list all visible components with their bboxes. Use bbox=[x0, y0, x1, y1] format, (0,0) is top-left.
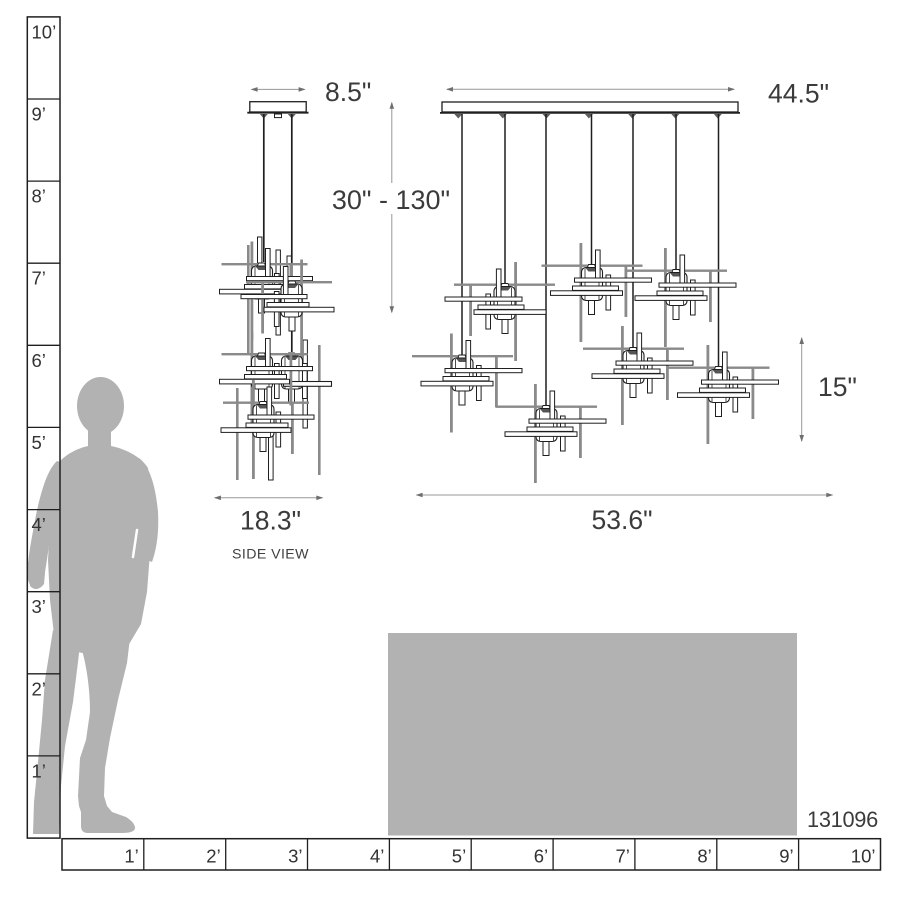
svg-text:44.5": 44.5" bbox=[768, 79, 829, 109]
svg-text:SIDE VIEW: SIDE VIEW bbox=[232, 547, 309, 563]
svg-text:7’: 7’ bbox=[615, 846, 629, 867]
svg-text:10’: 10’ bbox=[851, 846, 876, 867]
svg-text:4’: 4’ bbox=[370, 846, 384, 867]
svg-text:7’: 7’ bbox=[32, 268, 46, 289]
svg-text:30" - 130": 30" - 130" bbox=[332, 185, 450, 215]
svg-text:8’: 8’ bbox=[697, 846, 711, 867]
svg-text:4’: 4’ bbox=[32, 514, 46, 535]
svg-text:2’: 2’ bbox=[32, 678, 46, 699]
svg-text:9’: 9’ bbox=[32, 104, 46, 125]
svg-text:6’: 6’ bbox=[32, 350, 46, 371]
svg-text:1’: 1’ bbox=[124, 846, 138, 867]
svg-text:10’: 10’ bbox=[32, 21, 57, 42]
svg-text:18.3": 18.3" bbox=[240, 506, 301, 536]
svg-text:2’: 2’ bbox=[206, 846, 220, 867]
svg-text:131096: 131096 bbox=[807, 807, 878, 832]
svg-text:6’: 6’ bbox=[534, 846, 548, 867]
svg-text:5’: 5’ bbox=[452, 846, 466, 867]
svg-text:9’: 9’ bbox=[779, 846, 793, 867]
svg-text:15": 15" bbox=[818, 372, 857, 402]
svg-text:3’: 3’ bbox=[288, 846, 302, 867]
svg-text:8’: 8’ bbox=[32, 186, 46, 207]
svg-text:5’: 5’ bbox=[32, 432, 46, 453]
svg-text:8.5": 8.5" bbox=[325, 77, 371, 107]
svg-text:53.6": 53.6" bbox=[592, 505, 653, 535]
svg-text:3’: 3’ bbox=[32, 596, 46, 617]
svg-text:1’: 1’ bbox=[32, 760, 46, 781]
